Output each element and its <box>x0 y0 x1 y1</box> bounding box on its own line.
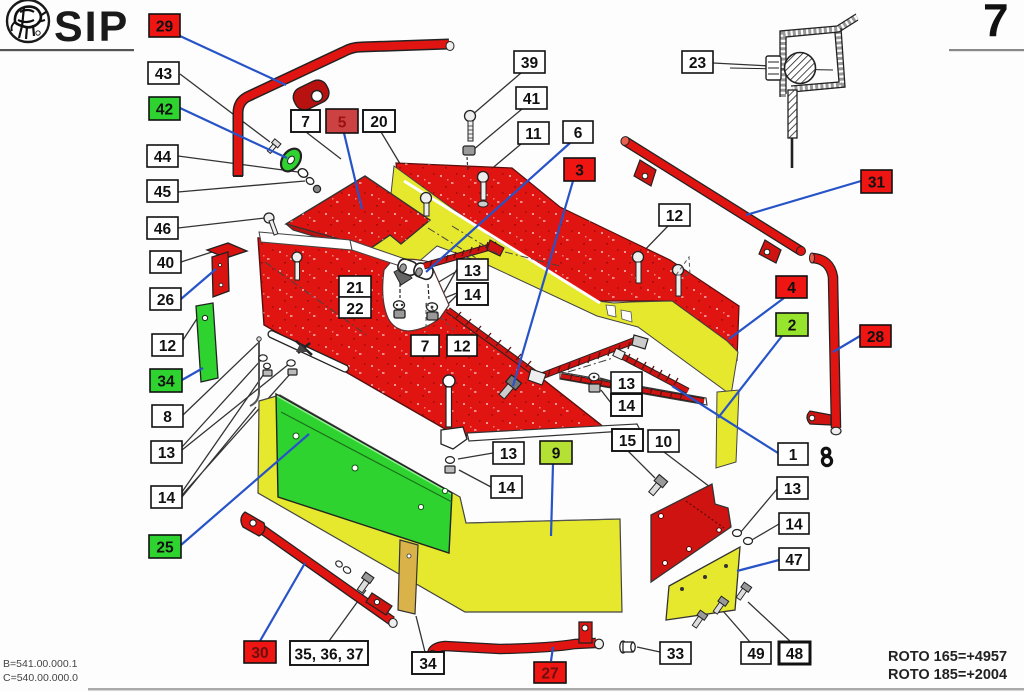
svg-text:12: 12 <box>453 339 470 356</box>
svg-text:3: 3 <box>575 163 584 180</box>
svg-text:14: 14 <box>158 490 176 507</box>
svg-text:28: 28 <box>867 329 885 346</box>
svg-text:7: 7 <box>421 339 430 356</box>
svg-text:11: 11 <box>525 126 542 143</box>
svg-text:33: 33 <box>667 646 685 663</box>
svg-text:9: 9 <box>552 446 561 463</box>
svg-text:25: 25 <box>156 540 174 557</box>
svg-text:20: 20 <box>370 114 387 131</box>
svg-text:5: 5 <box>338 115 347 132</box>
svg-text:30: 30 <box>251 645 268 662</box>
svg-text:43: 43 <box>155 66 173 83</box>
svg-text:12: 12 <box>159 338 176 355</box>
svg-text:10: 10 <box>655 434 672 451</box>
svg-text:46: 46 <box>154 221 172 238</box>
svg-text:ROTO 165=+4957: ROTO 165=+4957 <box>888 649 1007 665</box>
svg-text:27: 27 <box>541 666 558 683</box>
svg-text:ROTO 185=+2004: ROTO 185=+2004 <box>888 667 1007 683</box>
svg-text:4: 4 <box>787 280 796 297</box>
svg-text:13: 13 <box>158 445 176 462</box>
svg-text:7: 7 <box>983 0 1009 46</box>
svg-text:8: 8 <box>163 409 172 426</box>
svg-text:13: 13 <box>618 376 636 393</box>
svg-text:14: 14 <box>498 480 516 497</box>
svg-text:49: 49 <box>747 646 765 663</box>
svg-text:6: 6 <box>574 125 583 142</box>
svg-text:2: 2 <box>788 318 797 335</box>
svg-text:42: 42 <box>156 102 173 119</box>
svg-text:44: 44 <box>154 149 172 166</box>
svg-text:29: 29 <box>156 19 174 36</box>
svg-text:35, 36, 37: 35, 36, 37 <box>295 647 364 664</box>
svg-text:45: 45 <box>154 184 172 201</box>
svg-text:22: 22 <box>346 301 363 318</box>
svg-text:26: 26 <box>157 292 175 309</box>
svg-text:39: 39 <box>521 55 539 72</box>
svg-text:47: 47 <box>785 552 802 569</box>
svg-text:B=541.00.000.1: B=541.00.000.1 <box>3 658 78 670</box>
svg-text:15: 15 <box>619 433 637 450</box>
svg-text:14: 14 <box>785 517 803 534</box>
svg-text:7: 7 <box>301 114 310 131</box>
svg-text:12: 12 <box>666 208 683 225</box>
svg-text:SIP: SIP <box>54 3 129 51</box>
svg-text:14: 14 <box>618 398 636 415</box>
svg-text:13: 13 <box>500 446 518 463</box>
svg-text:34: 34 <box>419 656 437 673</box>
svg-text:41: 41 <box>523 91 541 108</box>
svg-text:21: 21 <box>346 280 364 297</box>
svg-text:14: 14 <box>464 287 482 304</box>
svg-text:23: 23 <box>689 55 707 72</box>
svg-text:48: 48 <box>786 646 804 663</box>
svg-text:40: 40 <box>157 255 174 272</box>
svg-text:34: 34 <box>157 374 175 391</box>
svg-text:1: 1 <box>789 447 798 464</box>
svg-text:13: 13 <box>464 263 482 280</box>
svg-text:C=540.00.000.0: C=540.00.000.0 <box>3 672 78 684</box>
svg-text:31: 31 <box>868 175 886 192</box>
svg-text:13: 13 <box>784 481 802 498</box>
